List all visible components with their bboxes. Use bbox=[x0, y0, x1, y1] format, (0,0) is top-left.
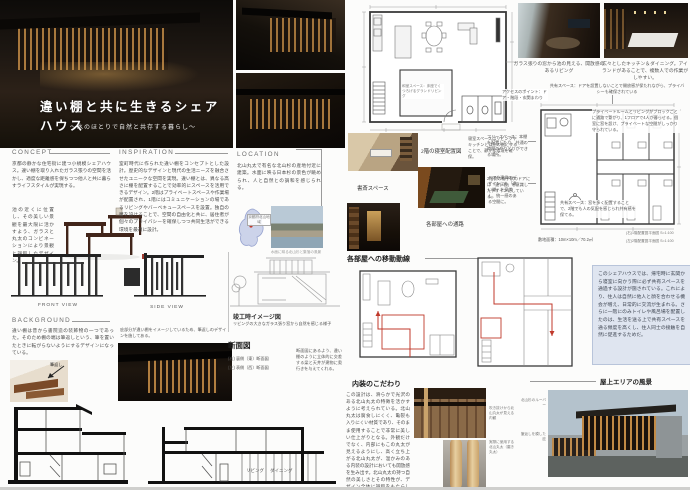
circulation-plan-1f bbox=[352, 265, 464, 367]
plan-caption-left: (左)2階配置図平面図 S=1:100 bbox=[626, 239, 688, 244]
wall-art-shape bbox=[468, 175, 480, 185]
plan2f-right-note: プライベートルームとリビングがブロックごとに通路で繋がり、1フロアで4人が暮らせ… bbox=[592, 109, 680, 133]
plan2f-left-leader1 bbox=[528, 141, 536, 142]
corridor-label: 各部屋への通路 bbox=[426, 220, 464, 228]
location-body: 北山丸太で有名な北山杉の産地付近に建築。水面に映る日本杉の景色が眺められ、人と自… bbox=[237, 162, 321, 191]
study-space-label: 書斎スペース bbox=[357, 184, 389, 192]
model-photo-top-slats bbox=[270, 18, 336, 52]
fudegaeshi-photo: 筆返し bbox=[10, 360, 68, 402]
living-sofa bbox=[568, 19, 590, 28]
rooftop-wall bbox=[656, 416, 682, 458]
inspiration-heading: INSPIRATION bbox=[119, 149, 174, 156]
side-view-label: SIDE VIEW bbox=[116, 305, 218, 312]
page-subtitle: 〜水のほとりで自然と共存する暮らし〜 bbox=[58, 122, 208, 131]
living-render bbox=[518, 3, 600, 58]
plan1f-access-note: アクセスのポイント：ドア・階段・玄関まわり bbox=[502, 89, 548, 101]
section-dining-label: ダイニング bbox=[270, 467, 293, 474]
circulation-text-box: このシェアハウスでは、帰宅時に玄関から寝室に向かう際に必ず共有スペースを通過する… bbox=[592, 265, 690, 365]
section-living-label: リビング bbox=[246, 467, 264, 474]
model-photo-bottom-eave bbox=[236, 89, 345, 95]
location-heading: LOCATION bbox=[237, 151, 280, 158]
kitayama-logs-photo bbox=[443, 440, 486, 488]
bedroom-layout-photo bbox=[348, 133, 418, 171]
log-left bbox=[450, 440, 462, 488]
inspiration-rule bbox=[175, 153, 228, 154]
interior-caption1: 吹き抜けから北山丸太が見える内観 bbox=[489, 406, 517, 421]
model-photo-bottom bbox=[236, 73, 345, 148]
bedroom-layout-label: 2階の寝室配置図 bbox=[421, 147, 461, 155]
corridor-wood-door bbox=[349, 207, 359, 249]
rooftop-base bbox=[548, 456, 688, 477]
interior-caption2: 実際に使用する北山丸太（磨き丸太） bbox=[489, 440, 517, 455]
corridor-photo bbox=[347, 203, 400, 251]
model-photo-top bbox=[236, 0, 345, 70]
side-view-drawing bbox=[116, 246, 218, 302]
presentation-board: 違い棚と共に生きるシェアハウス 〜水のほとりで自然と共存する暮らし〜 bbox=[0, 0, 690, 490]
kitchen-pendants bbox=[634, 11, 674, 14]
sections-item-right: (右) 裏側（東）断面図 bbox=[228, 356, 298, 362]
concept-heading: CONCEPT bbox=[12, 149, 53, 156]
circulation-plan-2f bbox=[472, 252, 580, 372]
sketch-bracket bbox=[228, 252, 229, 332]
map-label: 京都府北山地域 bbox=[247, 214, 271, 226]
model-photo-bottom-slats bbox=[250, 99, 330, 129]
living-caption: ガラス張りの窓から池の見える、開放感のあるリビング bbox=[512, 62, 606, 76]
front-view-drawing bbox=[8, 246, 108, 302]
interior-heading: 内装のこだわり bbox=[352, 379, 401, 389]
site-area-caption: 敷地面積：10m×10m／70.2㎡ bbox=[538, 237, 626, 243]
plan2f-left-note1: フリースペース：本棚を配置したり、共通の時間のやりとりができる場所。 bbox=[487, 134, 531, 158]
plan2f-left-leader2 bbox=[528, 183, 536, 184]
background-render bbox=[118, 343, 232, 401]
plan2f-top-note: 共有スペース：ドアを設置しないことで開放感が保たれながら、プライバシーも確保され… bbox=[548, 83, 686, 95]
background-note: 庇部分が違い棚をイメージしているため、筆返しのデザインを施してある。 bbox=[120, 327, 230, 339]
background-body: 違い棚は昔から書院造の装飾物の一つであった。そのため棚の端は筆返しという、筆を置… bbox=[12, 327, 114, 356]
bookshelf-shape bbox=[400, 137, 412, 161]
plan1f-room-note: 和室スペース：床座でくつろげるグランドリビング bbox=[402, 84, 444, 99]
circulation-heading: 各部屋への移動動線 bbox=[347, 254, 410, 264]
hero-roof-plane bbox=[0, 13, 200, 30]
section-drawing-west: リビング ダイニング bbox=[146, 420, 338, 488]
rooftop-label: 屋上エリアの風景 bbox=[600, 376, 652, 386]
front-view-label: FRONT VIEW bbox=[8, 303, 108, 310]
sections-item-left: (左) 表側（西）断面図 bbox=[228, 365, 298, 371]
background-render-slats bbox=[148, 359, 218, 393]
inspiration-body: 室町時代に作られた違い棚をコンセプトとした設計。歴史的なデザインと現代の生活ニー… bbox=[119, 160, 229, 233]
rooftop-note1: 北山杉のルーバー bbox=[520, 398, 546, 408]
sections-note: 断面図にあるよう、違い棚のように立体的に交差する梁と天井が建物に奥行きを与えてく… bbox=[296, 348, 342, 372]
first-floor-plan bbox=[346, 2, 518, 136]
site-photo bbox=[271, 206, 323, 248]
sketch-caption: リビングの大きなガラス張り窓から自然を感じる様子 bbox=[233, 321, 345, 327]
location-bracket-v bbox=[321, 149, 322, 213]
background-heading: BACKGROUND bbox=[12, 317, 71, 324]
completion-sketch bbox=[226, 250, 346, 310]
log-right bbox=[467, 440, 479, 488]
plan2f-bottom-note: 共有スペース：窓を多く配置することで、2階でも人の気配を感じられ共有感を保てる。 bbox=[560, 200, 636, 218]
sketch-label: 竣工時イメージ図 bbox=[233, 312, 281, 321]
study-space-photo bbox=[418, 167, 485, 208]
sections-heading: 断面図 bbox=[228, 340, 251, 351]
fudegaeshi-label: 筆返し bbox=[50, 362, 62, 368]
kitchen-caption: 広々としたキッチン＆ダイニング。アイランドがあることで、複数人での作業がしやすい… bbox=[602, 62, 688, 83]
corridor-door-glow bbox=[367, 211, 381, 241]
atrium-log bbox=[424, 388, 428, 438]
rooftop-rule bbox=[530, 381, 596, 382]
background-rule bbox=[72, 321, 110, 322]
plan-caption-right: (右)1階配置図平面図 S=1:100 bbox=[626, 231, 688, 236]
concept-rule bbox=[50, 153, 110, 154]
section-drawing-east bbox=[6, 402, 130, 488]
interior-atrium-photo bbox=[414, 388, 486, 438]
hero-render: 違い棚と共に生きるシェアハウス 〜水のほとりで自然と共存する暮らし〜 bbox=[0, 0, 233, 148]
interior-body: この設計は、滑らかで光沢のある北山丸太の特徴を活かすように考えられている。北山丸… bbox=[346, 391, 410, 490]
living-rug bbox=[546, 37, 580, 49]
concept-body: 京都の静かな住宅街に建つ小規模シェアハウス。違い棚を取り入れたガラス張りの空間を… bbox=[12, 160, 111, 189]
desk-shape bbox=[370, 149, 392, 157]
hero-deck-glow bbox=[40, 62, 200, 92]
bed-shape bbox=[429, 191, 468, 203]
kitchen-render bbox=[604, 3, 688, 58]
rooftop-render bbox=[548, 390, 688, 477]
rooftop-note2: 筆返しを模した庇 bbox=[520, 432, 546, 442]
location-bracket-h bbox=[296, 149, 322, 150]
kitchen-wall-slats bbox=[604, 9, 626, 49]
kitchen-island bbox=[628, 33, 679, 47]
plan2f-left-note2: 2階側の格子状のドアには「違い棚」を意識したデザインにしている。 bbox=[487, 176, 531, 200]
